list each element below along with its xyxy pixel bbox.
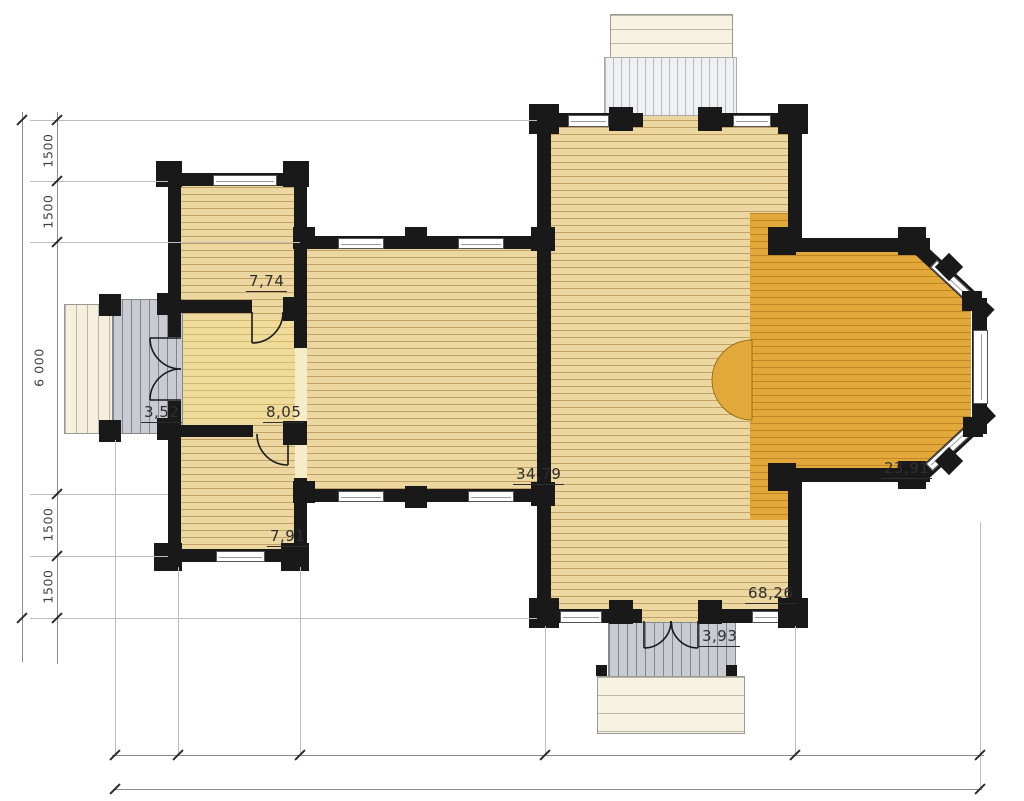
left-porch-steps [64, 304, 114, 434]
log-post [283, 161, 309, 187]
dimension-line [22, 112, 23, 662]
rear-porch-steps [597, 676, 745, 734]
log-post [898, 227, 926, 255]
log-post [768, 227, 796, 255]
extension-line [795, 626, 796, 756]
wall-segment [537, 113, 551, 623]
wall-segment [181, 300, 252, 313]
window [338, 238, 384, 249]
extension-line [980, 522, 981, 790]
wall-segment [294, 173, 307, 348]
area-label-main-hall: 68,26 [745, 584, 796, 604]
log-post [609, 600, 633, 624]
log-post [283, 297, 307, 321]
wing-floor [300, 236, 545, 502]
floor-plan-drawing: 7,74 3,52 8,05 7,91 34,79 23,91 68,26 3,… [0, 0, 1024, 801]
log-post [283, 421, 307, 445]
log-post [99, 294, 121, 316]
dimension-label: 1500 [41, 121, 56, 181]
log-post [529, 598, 559, 628]
extension-line [300, 567, 301, 756]
window [458, 238, 504, 249]
area-label-annex-hall-room: 8,05 [263, 403, 304, 423]
top-porch-steps [610, 14, 733, 59]
extension-line [115, 440, 116, 756]
log-post [596, 665, 607, 676]
window [216, 551, 265, 562]
dimension-line [112, 755, 984, 756]
bay-right-window [973, 330, 988, 404]
dimension-label: 1500 [41, 495, 56, 555]
window [338, 491, 384, 502]
dimension-line [57, 112, 58, 664]
extension-line [30, 618, 537, 619]
log-post [531, 227, 555, 251]
log-post [293, 481, 315, 503]
window [733, 115, 771, 127]
log-post [157, 293, 179, 315]
dimension-label: 1500 [41, 182, 56, 242]
area-label-living-wing: 34,79 [513, 465, 564, 485]
area-label-entry-porch: 3,52 [141, 403, 182, 423]
area-label-rear-porch: 3,93 [699, 627, 740, 647]
log-post [963, 417, 983, 437]
extension-line [178, 567, 179, 756]
log-post [156, 161, 182, 187]
extension-line [30, 120, 537, 121]
window [468, 491, 514, 502]
log-post [768, 463, 796, 491]
dimension-label: 1500 [41, 557, 56, 617]
window [560, 611, 602, 623]
log-post [99, 420, 121, 442]
log-post [531, 482, 555, 506]
window [213, 175, 277, 186]
window [568, 115, 609, 127]
log-post [405, 227, 427, 249]
log-post [609, 107, 633, 131]
log-post [778, 104, 808, 134]
dimension-label: 6 000 [32, 338, 47, 398]
extension-line [30, 242, 300, 243]
area-label-annex-bottom-room: 7,91 [267, 527, 308, 547]
extension-line [545, 626, 546, 756]
log-post [726, 665, 737, 676]
log-post [281, 543, 309, 571]
window [752, 611, 780, 623]
log-post [962, 291, 982, 311]
log-post [698, 107, 722, 131]
log-post [529, 104, 559, 134]
area-label-annex-top-room: 7,74 [246, 272, 287, 292]
dimension-line [113, 789, 982, 790]
wall-segment [181, 425, 253, 437]
log-post [698, 600, 722, 624]
log-post [405, 486, 427, 508]
area-label-veranda-bay: 23,91 [881, 459, 932, 479]
log-post [293, 227, 315, 249]
